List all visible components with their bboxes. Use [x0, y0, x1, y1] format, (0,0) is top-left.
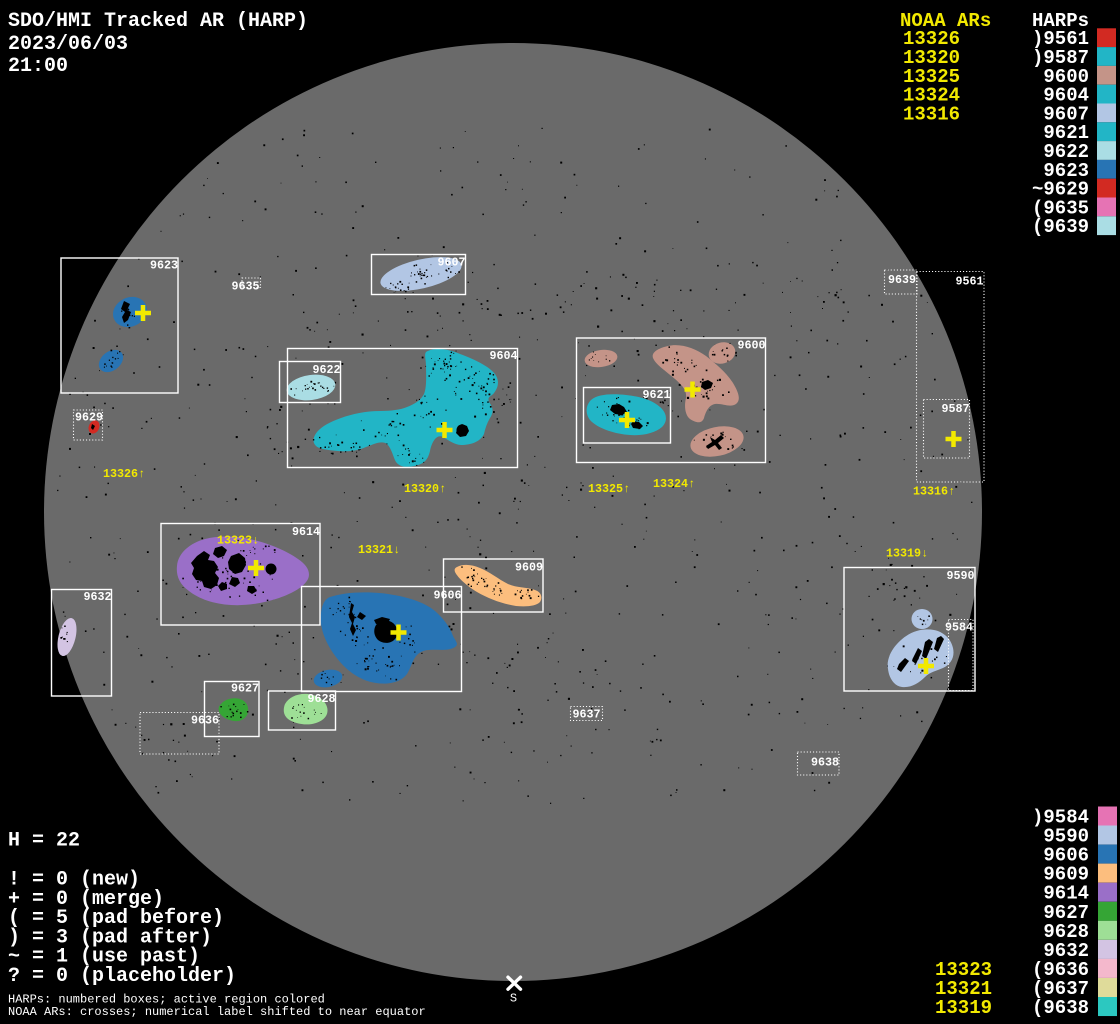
- svg-text:9632: 9632: [83, 590, 111, 604]
- svg-text:9614: 9614: [292, 525, 320, 539]
- svg-text:13323↓: 13323↓: [217, 534, 259, 548]
- svg-text:9637: 9637: [573, 708, 601, 722]
- svg-text:(9638: (9638: [1032, 997, 1089, 1019]
- svg-text:21:00: 21:00: [8, 55, 68, 78]
- svg-text:9622: 9622: [312, 363, 340, 377]
- svg-text:H = 22: H = 22: [8, 830, 80, 853]
- svg-text:13319: 13319: [935, 997, 992, 1019]
- svg-text:9606: 9606: [433, 589, 461, 603]
- svg-text:NOAA ARs: crosses; numerical l: NOAA ARs: crosses; numerical label shift…: [8, 1005, 426, 1019]
- svg-text:13320↑: 13320↑: [404, 482, 446, 496]
- svg-text:2023/06/03: 2023/06/03: [8, 33, 128, 56]
- svg-text:9600: 9600: [737, 339, 765, 353]
- svg-text:9636: 9636: [191, 714, 219, 728]
- svg-text:13321↓: 13321↓: [358, 543, 400, 557]
- svg-text:13319↓: 13319↓: [886, 547, 928, 561]
- svg-text:9628: 9628: [307, 692, 335, 706]
- svg-text:SDO/HMI Tracked AR (HARP): SDO/HMI Tracked AR (HARP): [8, 10, 308, 33]
- svg-text:13316: 13316: [903, 103, 960, 125]
- svg-text:9607: 9607: [437, 256, 465, 270]
- svg-text:(9639: (9639: [1032, 216, 1089, 238]
- svg-text:? = 0 (placeholder): ? = 0 (placeholder): [8, 965, 236, 988]
- svg-text:13324↑: 13324↑: [653, 477, 695, 491]
- svg-text:S: S: [510, 992, 517, 1006]
- svg-text:9561: 9561: [955, 275, 983, 289]
- svg-text:9629: 9629: [75, 411, 103, 425]
- svg-text:13326↑: 13326↑: [103, 467, 145, 481]
- svg-text:9609: 9609: [515, 561, 543, 575]
- svg-text:9621: 9621: [642, 388, 670, 402]
- svg-text:9623: 9623: [150, 259, 178, 273]
- svg-text:9604: 9604: [489, 349, 517, 363]
- svg-text:9639: 9639: [888, 273, 916, 287]
- svg-text:9635: 9635: [232, 280, 260, 294]
- svg-text:9627: 9627: [231, 682, 259, 696]
- svg-text:9590: 9590: [946, 569, 974, 583]
- svg-text:13316↑: 13316↑: [913, 485, 955, 499]
- svg-text:9587: 9587: [941, 402, 969, 416]
- svg-text:9584: 9584: [945, 621, 973, 635]
- svg-text:13325↑: 13325↑: [588, 482, 630, 496]
- svg-text:9638: 9638: [811, 756, 839, 770]
